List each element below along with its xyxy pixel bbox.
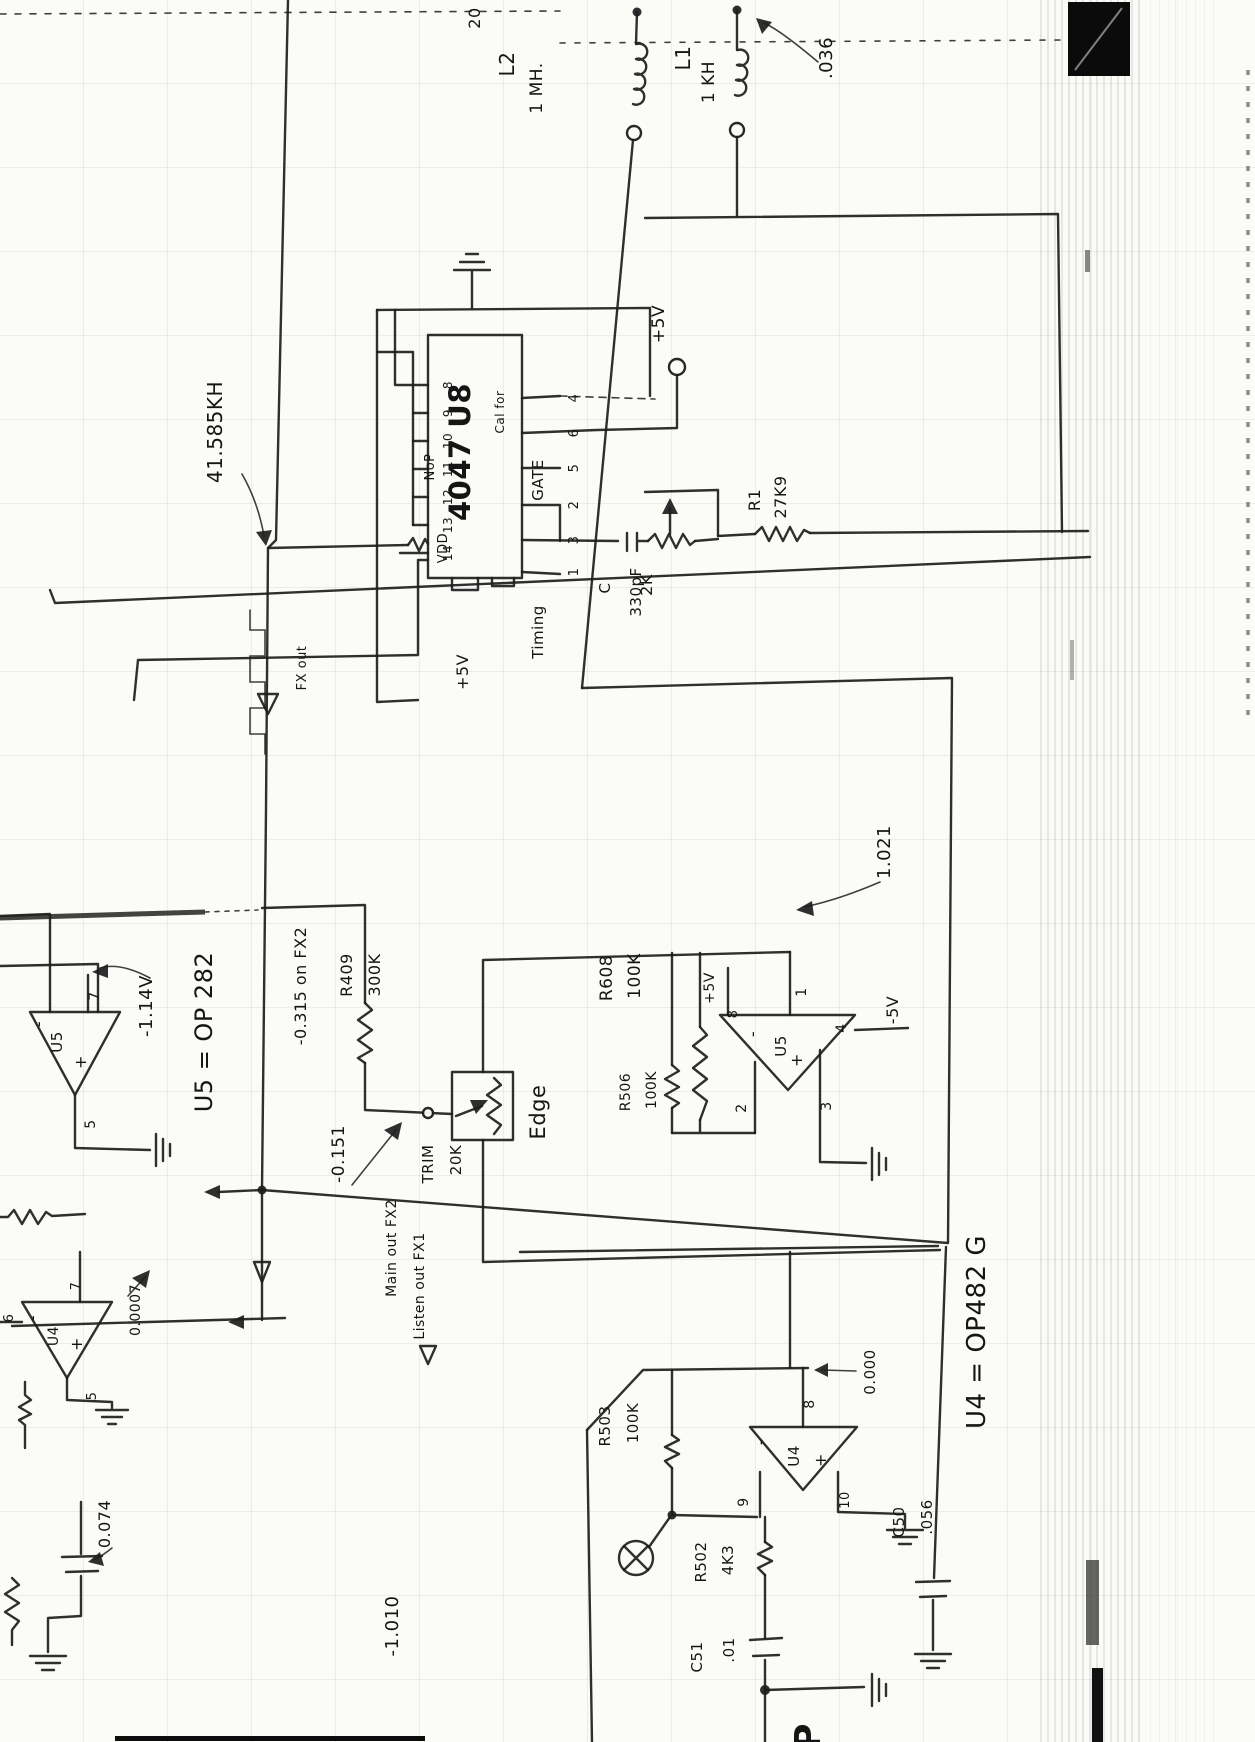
opamp-u4-right-network [587,1252,923,1742]
trim-value-label: 20K [447,1144,465,1175]
u4r-ref-label: U4 [785,1445,803,1467]
ic-pin-right-1: 6 [567,429,582,438]
u5-part-note: U5 = OP 282 [190,952,218,1113]
ic-pin-right-0: 4 [567,394,582,403]
ic-subtitle: Cal for [493,391,507,434]
fx2-level-annotation: -0.315 on FX2 [291,927,310,1046]
u5r-plus5v-label: +5V [702,972,718,1004]
r608-ref-label: R608 [597,955,617,1001]
ic-pin-left-3: 11 [441,461,455,477]
u4l-minus-sign: - [23,1315,42,1321]
r608-value-label: 100K [625,953,645,999]
u4l-plus-sign: + [67,1337,86,1351]
cap-074-annotation: 0.074 [95,1500,114,1548]
u5l-ref-label: U5 [48,1031,66,1053]
u5l-pin-gnd: 5 [83,1119,99,1128]
inductor-l1 [730,6,818,217]
u4l-pin-out: 7 [69,1282,84,1291]
trim-level-annotation: -0.151 [329,1125,349,1183]
u5l-minus-sign: - [29,1021,48,1027]
schematic-drawing: 20 L2 1 MH. L1 1 KH .036 41.585KH FX out… [0,0,1255,1742]
r409-value-label: 300K [365,953,384,996]
c51-ref-label: C51 [688,1641,706,1672]
u4-part-note: U4 = OP482 G [962,1235,992,1429]
damping-annotation: .036 [816,37,837,79]
u4l-pin-in: 6 [2,1314,17,1323]
c51-value-label: .01 [720,1637,738,1662]
u4r-minus-sign: - [751,1439,770,1445]
ic-pin-left-1: 9 [441,409,455,417]
u4l-ref-label: U4 [46,1326,62,1346]
ic-gate-label: GATE [529,459,547,500]
u5r-pin-vminus: 4 [834,1023,850,1032]
u5r-pin-inv: 2 [734,1103,750,1112]
annotation-arrows [242,474,272,546]
fx-out-label: FX out [295,646,310,691]
r1-value-label: 27K9 [771,475,790,518]
ic-pin-left-4: 12 [441,489,455,505]
l1-ref-label: L1 [671,46,695,71]
l2-ref-label: L2 [495,52,519,77]
minus5v-label: -5V [883,996,902,1024]
u5l-output-voltage: -1.14V [136,975,157,1037]
page-number: 20 [465,7,484,28]
c-timing-value-label: 330pF [627,567,645,616]
r503-value-label: 100K [624,1402,642,1443]
u5l-plus-sign: + [71,1055,90,1069]
u4r-output-annotation: 0.000 [861,1349,879,1394]
scanned-schematic-page: 20 L2 1 MH. L1 1 KH .036 41.585KH FX out… [0,0,1255,1742]
r502-value-label: 4K3 [719,1545,737,1575]
ic-pin-left-5: 13 [441,517,455,533]
freq-annotation: 41.585KH [203,381,227,483]
u5r-pin-vplus: 8 [726,1010,741,1019]
ic-pin-left-0: 8 [441,381,455,389]
c-timing-ref-label: C [596,583,614,594]
ic-pin-right-2: 5 [567,464,582,473]
scan-artifacts [0,2,1248,1742]
l2-value-label: 1 MH. [527,62,547,113]
wires-main [12,0,1090,1329]
u4r-pin-out: 8 [802,1399,818,1408]
c50-ref-label: C50 [890,1506,908,1537]
u5r-minus-sign: - [743,1031,762,1037]
edge-box-label: Edge [526,1085,550,1140]
u4l-output-annotation: 0.0007 [128,1284,144,1336]
u4r-pin-noninv: 10 [838,1491,853,1509]
r503-ref-label: R503 [596,1405,614,1446]
ic-pin-right-4: 3 [567,536,582,545]
u4l-pin-gnd: 5 [85,1392,100,1401]
opamp-u5-right [665,882,908,1180]
r506-value-label: 100K [644,1071,660,1109]
bottom-cut-text: OP [788,1723,829,1742]
plus5v-terminal-label: +5V [649,305,669,343]
r409-ref-label: R409 [337,953,356,997]
cap-c50-branch [915,1247,951,1668]
l1-value-label: 1 KH [699,61,719,103]
ic-pin-left-6: 14 [441,545,455,561]
c50-value-label: .056 [918,1499,936,1534]
listen-out-label: Listen out FX1 [412,1232,428,1339]
main-out-label: Main out FX2 [384,1199,400,1297]
ic-pin-left-2: 10 [441,433,455,449]
bottom-left-voltage: -1.010 [382,1595,403,1656]
u4r-plus-sign: + [811,1453,830,1467]
plus5v-ic-label: +5V [453,654,472,690]
ic-pin-right-3: 2 [567,501,582,510]
u4r-pin-inv: 9 [736,1497,752,1506]
r1-ref-label: R1 [745,489,764,511]
ic-pin-right-5: 1 [567,568,582,577]
r502-ref-label: R502 [692,1541,710,1582]
r506-ref-label: R506 [618,1073,634,1111]
u5r-plus-sign: + [787,1053,806,1067]
u5l-pin-out: 7 [87,991,103,1000]
trim-ref-label: TRIM [419,1145,437,1185]
u5r-pin-noninv: 3 [819,1101,835,1110]
ic-timing-label: Timing [529,605,547,660]
ic-nop-label: NoP [423,453,438,480]
u5r-output-annotation: 1.021 [874,825,895,879]
u5r-pin-out: 1 [794,987,810,996]
